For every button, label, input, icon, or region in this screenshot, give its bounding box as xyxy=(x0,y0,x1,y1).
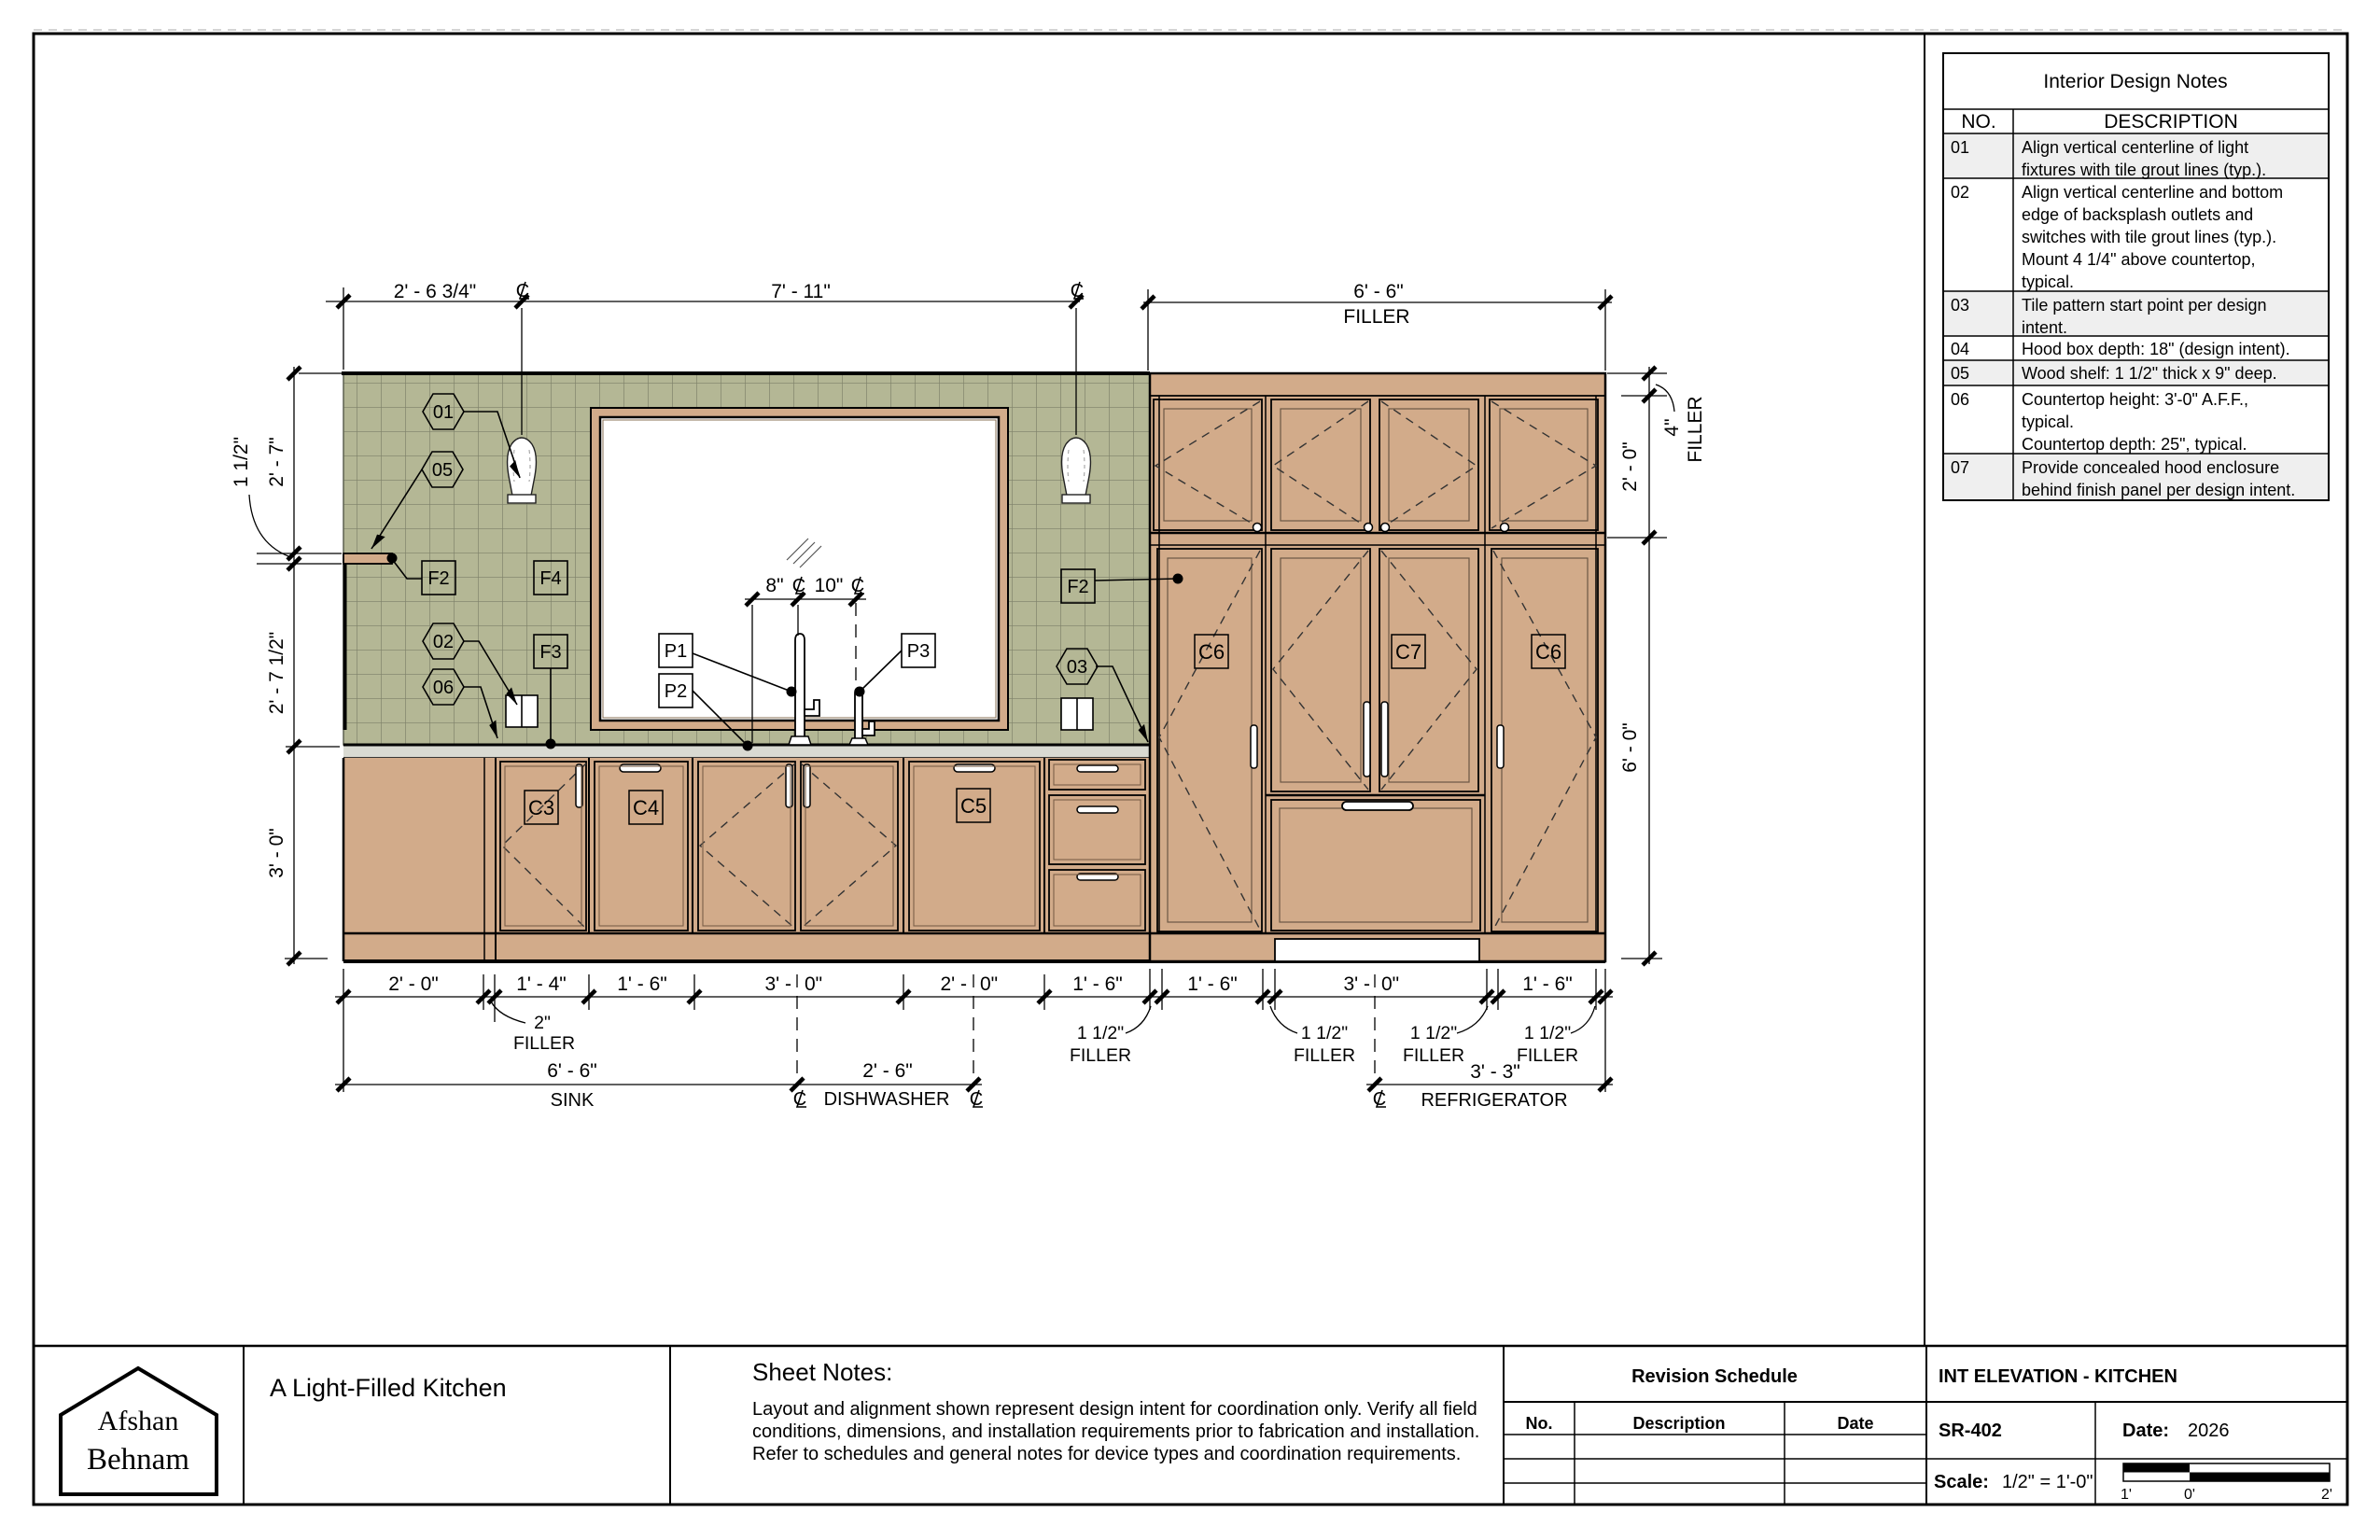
svg-text:Scale:: Scale: xyxy=(1934,1472,1989,1492)
svg-text:F3: F3 xyxy=(539,642,561,663)
svg-text:1' - 6": 1' - 6" xyxy=(1522,973,1572,995)
svg-text:Afshan: Afshan xyxy=(98,1406,179,1436)
svg-text:0": 0" xyxy=(805,973,822,995)
svg-text:C7: C7 xyxy=(1395,640,1421,664)
svg-text:02: 02 xyxy=(433,632,454,652)
svg-text:2' - 6 3/4": 2' - 6 3/4" xyxy=(394,281,477,302)
svg-text:Description: Description xyxy=(1632,1414,1725,1433)
svg-text:01: 01 xyxy=(1951,138,1969,157)
svg-text:1 1/2": 1 1/2" xyxy=(231,437,252,487)
svg-text:P2: P2 xyxy=(665,681,687,702)
svg-text:0': 0' xyxy=(2184,1487,2195,1503)
svg-text:1': 1' xyxy=(2121,1487,2132,1503)
svg-text:INT ELEVATION - KITCHEN: INT ELEVATION - KITCHEN xyxy=(1939,1366,2177,1387)
svg-text:C4: C4 xyxy=(633,796,659,819)
svg-text:F4: F4 xyxy=(539,568,561,589)
svg-text:2' - 7": 2' - 7" xyxy=(266,437,287,486)
svg-text:3' -: 3' - xyxy=(764,973,791,995)
svg-text:1 1/2": 1 1/2" xyxy=(1410,1023,1457,1043)
svg-text:C6: C6 xyxy=(1198,640,1225,664)
svg-text:1/2" = 1'-0": 1/2" = 1'-0" xyxy=(2002,1472,2093,1492)
svg-text:Date:: Date: xyxy=(2122,1421,2169,1441)
svg-text:01: 01 xyxy=(433,402,454,423)
svg-text:Interior Design Notes: Interior Design Notes xyxy=(2043,71,2227,92)
svg-text:2' - 0": 2' - 0" xyxy=(388,973,438,995)
svg-text:1' - 6": 1' - 6" xyxy=(1187,973,1237,995)
svg-text:C3: C3 xyxy=(528,796,554,819)
svg-text:3' - 3": 3' - 3" xyxy=(1470,1061,1519,1083)
svg-text:0": 0" xyxy=(980,973,998,995)
svg-text:7' - 11": 7' - 11" xyxy=(771,281,831,302)
svg-text:8": 8" xyxy=(765,575,783,596)
svg-text:05: 05 xyxy=(432,460,453,481)
svg-text:Align vertical centerline and: Align vertical centerline and bottomedge… xyxy=(2022,183,2283,291)
svg-text:05: 05 xyxy=(1951,364,1969,383)
svg-text:06: 06 xyxy=(433,678,454,698)
svg-text:Hood box depth: 18" (design in: Hood box depth: 18" (design intent). xyxy=(2022,340,2290,358)
svg-text:3' - 0": 3' - 0" xyxy=(266,828,287,877)
svg-text:02: 02 xyxy=(1951,183,1969,202)
svg-text:Revision Schedule: Revision Schedule xyxy=(1631,1366,1798,1387)
svg-text:No.: No. xyxy=(1526,1414,1553,1433)
svg-text:2' -: 2' - xyxy=(940,973,967,995)
svg-text:DISHWASHER: DISHWASHER xyxy=(824,1089,950,1110)
svg-text:2': 2' xyxy=(2321,1487,2332,1503)
svg-text:P1: P1 xyxy=(665,641,687,662)
svg-text:FILLER: FILLER xyxy=(1403,1045,1464,1066)
svg-text:Layout and alignment shown rep: Layout and alignment shown represent des… xyxy=(752,1399,1477,1420)
svg-text:NO.: NO. xyxy=(1961,111,1995,133)
svg-text:07: 07 xyxy=(1951,458,1969,477)
svg-text:P3: P3 xyxy=(907,641,930,662)
svg-text:conditions, dimensions, and in: conditions, dimensions, and installation… xyxy=(752,1421,1479,1442)
svg-text:C6: C6 xyxy=(1535,640,1561,664)
svg-text:A Light-Filled Kitchen: A Light-Filled Kitchen xyxy=(270,1374,507,1402)
svg-text:2' - 0": 2' - 0" xyxy=(1619,441,1641,491)
svg-text:03: 03 xyxy=(1067,657,1087,678)
svg-text:6' - 6": 6' - 6" xyxy=(1353,281,1403,302)
svg-text:06: 06 xyxy=(1951,390,1969,409)
svg-text:Wood shelf: 1 1/2" thick x 9": Wood shelf: 1 1/2" thick x 9" deep. xyxy=(2022,364,2277,383)
svg-text:SR-402: SR-402 xyxy=(1939,1421,2002,1441)
svg-text:04: 04 xyxy=(1951,340,1969,358)
svg-text:F2: F2 xyxy=(1067,577,1088,597)
svg-text:REFRIGERATOR: REFRIGERATOR xyxy=(1421,1090,1567,1111)
svg-text:2026: 2026 xyxy=(2188,1421,2230,1441)
svg-text:2' - 7 1/2": 2' - 7 1/2" xyxy=(266,632,287,715)
svg-text:DESCRIPTION: DESCRIPTION xyxy=(2104,111,2238,133)
svg-text:1' - 4": 1' - 4" xyxy=(516,973,566,995)
svg-text:Date: Date xyxy=(1837,1414,1873,1433)
svg-text:FILLER: FILLER xyxy=(1343,306,1409,328)
svg-text:03: 03 xyxy=(1951,296,1969,315)
svg-text:2": 2" xyxy=(534,1013,551,1033)
svg-text:C5: C5 xyxy=(960,794,987,818)
svg-text:6' - 0": 6' - 0" xyxy=(1619,722,1641,772)
svg-text:1 1/2": 1 1/2" xyxy=(1524,1023,1571,1043)
svg-text:Countertop height: 3'-0" A.F.F: Countertop height: 3'-0" A.F.F.,typical.… xyxy=(2022,390,2248,454)
svg-text:FILLER: FILLER xyxy=(1685,396,1706,462)
svg-text:1' - 6": 1' - 6" xyxy=(1072,973,1122,995)
svg-text:FILLER: FILLER xyxy=(1517,1045,1578,1066)
svg-text:FILLER: FILLER xyxy=(513,1033,575,1054)
svg-text:2' - 6": 2' - 6" xyxy=(862,1060,912,1082)
svg-text:Sheet Notes:: Sheet Notes: xyxy=(752,1358,892,1386)
svg-text:SINK: SINK xyxy=(551,1090,595,1111)
svg-text:Behnam: Behnam xyxy=(87,1443,189,1477)
svg-text:FILLER: FILLER xyxy=(1294,1045,1355,1066)
svg-text:F2: F2 xyxy=(427,568,449,589)
svg-text:3' -: 3' - xyxy=(1343,973,1370,995)
svg-text:6' - 6": 6' - 6" xyxy=(547,1060,596,1082)
svg-text:0": 0" xyxy=(1381,973,1399,995)
svg-text:1 1/2": 1 1/2" xyxy=(1077,1023,1124,1043)
svg-text:10": 10" xyxy=(815,575,844,596)
svg-text:4": 4" xyxy=(1661,418,1683,436)
svg-text:Refer to schedules and general: Refer to schedules and general notes for… xyxy=(752,1444,1461,1464)
svg-text:FILLER: FILLER xyxy=(1070,1045,1131,1066)
svg-text:1 1/2": 1 1/2" xyxy=(1301,1023,1348,1043)
svg-text:1' - 6": 1' - 6" xyxy=(617,973,666,995)
